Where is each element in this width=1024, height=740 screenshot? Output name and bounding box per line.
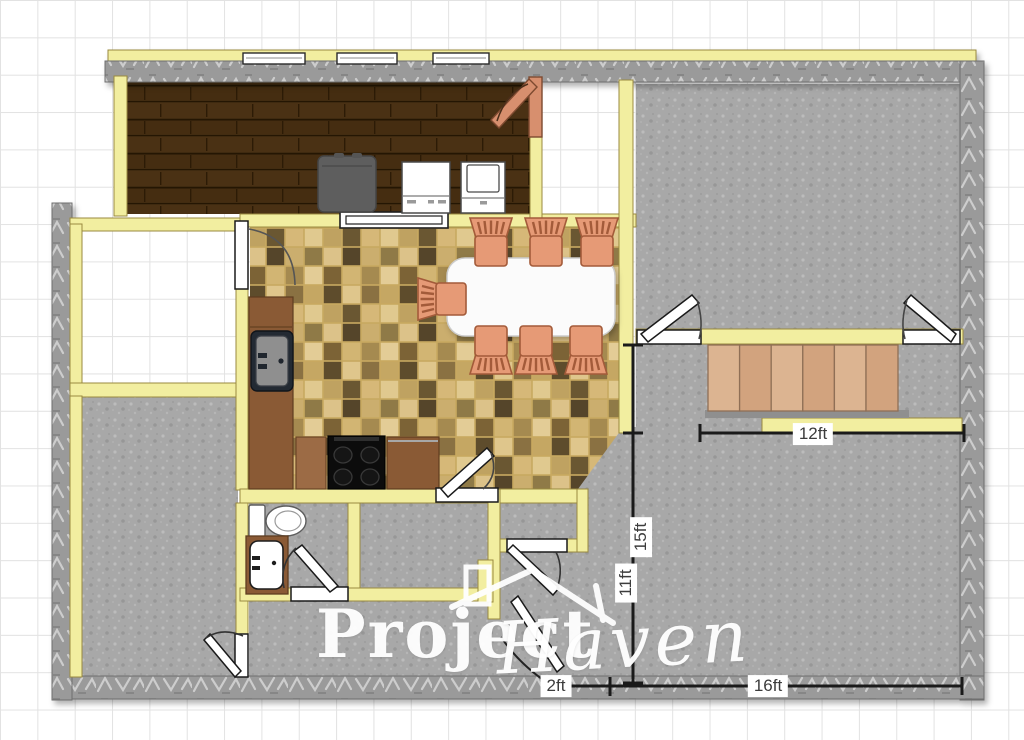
floor-plan-drawing	[0, 0, 1024, 740]
kitchen-cabinet[interactable]	[296, 437, 326, 489]
grill[interactable]	[318, 153, 376, 212]
toilet[interactable]	[249, 505, 306, 537]
wall-deck-right[interactable]	[530, 130, 542, 218]
wall-dining-right[interactable]	[619, 80, 633, 433]
wall-kitchen-bottom[interactable]	[240, 489, 586, 503]
wall-left-mid[interactable]	[70, 383, 240, 397]
wall-left-top[interactable]	[70, 218, 242, 231]
dishwasher[interactable]	[402, 162, 450, 213]
dimension-label-lower-height[interactable]: 11ft	[615, 563, 637, 602]
dining-chair[interactable]	[470, 218, 512, 266]
dimension-label-bottom-width[interactable]: 16ft	[748, 675, 788, 697]
range-stove[interactable]	[328, 436, 385, 489]
dining-chair[interactable]	[418, 278, 466, 320]
exterior-wall-left[interactable]	[52, 203, 72, 700]
wall-deck-left[interactable]	[114, 76, 127, 216]
pass-through-window[interactable]	[340, 212, 448, 228]
kitchen-counter[interactable]	[249, 297, 293, 489]
dining-chair[interactable]	[515, 326, 557, 374]
wall-closet-right[interactable]	[577, 489, 588, 552]
window[interactable]	[337, 53, 397, 64]
exterior-wall-top[interactable]	[105, 61, 982, 82]
gray-floor-middle-room	[360, 503, 489, 589]
window[interactable]	[433, 53, 489, 64]
dining-chair[interactable]	[565, 326, 607, 374]
wall-left-lower[interactable]	[70, 396, 82, 677]
washer[interactable]	[461, 162, 505, 213]
exterior-wall-right[interactable]	[960, 61, 984, 700]
stairs[interactable]	[705, 345, 909, 418]
dining-chair[interactable]	[470, 326, 512, 374]
kitchen-sink[interactable]	[251, 331, 293, 391]
gray-floor-left-room	[82, 396, 238, 677]
gray-floor-hall	[249, 600, 637, 677]
dining-chair[interactable]	[525, 218, 567, 266]
dimension-label-entry-offset[interactable]: 2ft	[541, 675, 572, 697]
dining-chair[interactable]	[576, 218, 618, 266]
wall-white-room-left[interactable]	[70, 224, 82, 386]
gray-floor-upper-room	[636, 84, 963, 332]
floor-plan-canvas: 12ft 15ft 11ft 2ft 16ft Project Haven	[0, 0, 1024, 740]
dimension-label-total-height[interactable]: 15ft	[630, 517, 652, 557]
wall-bath-right[interactable]	[348, 503, 360, 601]
kitchen-counter[interactable]	[387, 437, 439, 489]
deck-furniture	[318, 153, 505, 213]
window[interactable]	[243, 53, 305, 64]
dining-table[interactable]	[447, 258, 615, 336]
bathroom-vanity[interactable]	[246, 536, 288, 594]
dimension-label-stairs-width[interactable]: 12ft	[793, 423, 833, 445]
